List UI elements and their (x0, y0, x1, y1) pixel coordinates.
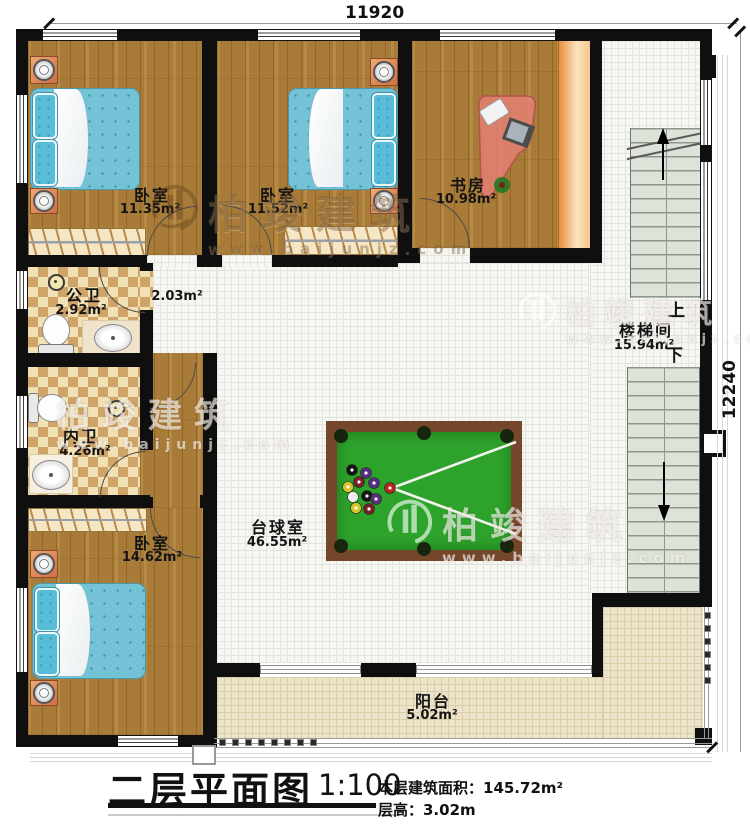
wall (412, 248, 420, 263)
dimension-right: 12240 (720, 360, 740, 419)
pillow (372, 93, 396, 139)
railing-baluster (310, 739, 317, 746)
billiard-balls (343, 465, 396, 515)
wall (592, 593, 603, 677)
window (700, 80, 712, 145)
stair-up-arrow (662, 142, 664, 180)
window (440, 29, 555, 41)
floor-area-info: 本层建筑面积：145.72m² (378, 777, 563, 798)
table-lamp-icon (33, 59, 55, 81)
room-area-bedroom-3: 14.62m² (122, 550, 182, 565)
floor-height-info: 层高：3.02m (378, 799, 476, 820)
pool-pockets (334, 426, 514, 556)
wall (361, 663, 416, 677)
room-area-balcony: 5.02m² (406, 708, 457, 723)
railing-baluster (704, 625, 711, 632)
nightstand (370, 58, 398, 86)
nightstand (30, 188, 58, 214)
room-area-ensuite-bathroom: 4.26m² (59, 444, 110, 459)
door-patch-tile-2 (222, 255, 272, 267)
railing-baluster (704, 677, 711, 684)
railing-baluster (258, 739, 265, 746)
railing-baluster (704, 612, 711, 619)
wall (212, 255, 222, 267)
stair-up-arrowhead (657, 128, 669, 144)
eave-line (30, 757, 712, 758)
nightstand (30, 680, 58, 706)
balcony-rail-line (214, 747, 712, 748)
table-lamp-icon (33, 553, 55, 575)
title-rule-thick (108, 803, 376, 808)
table-lamp-icon (33, 682, 55, 704)
sliding-door (260, 665, 361, 674)
door-patch-tile-1 (147, 255, 197, 267)
pillow (372, 140, 396, 186)
sliding-window (416, 665, 592, 674)
wall (202, 29, 217, 267)
cue-stick (392, 442, 516, 488)
stair-down-label: 下 (666, 341, 683, 366)
eave-line (717, 55, 718, 752)
bed-sheet-fold (308, 89, 343, 187)
nightstand (370, 188, 398, 214)
bed-sheet-fold (56, 584, 91, 676)
balcony-floor-right (603, 607, 703, 738)
room-area-billiards: 46.55m² (247, 535, 307, 550)
window (118, 735, 178, 747)
wall (398, 29, 412, 263)
window (16, 396, 28, 448)
room-area-bedroom-2: 11.52m² (248, 202, 308, 217)
sink (94, 324, 132, 352)
wall (470, 248, 602, 263)
room-area-hall: 2.03m² (151, 289, 202, 304)
railing-baluster (297, 739, 304, 746)
stair-down-arrowhead (658, 505, 670, 521)
pillow (35, 588, 59, 632)
wall (16, 353, 153, 367)
title-rule-thin (108, 814, 400, 816)
ceiling-lamp-icon (108, 400, 125, 417)
wall (272, 255, 398, 267)
window (700, 162, 712, 300)
room-area-public-bathroom: 2.92m² (55, 303, 106, 318)
floor-plan-screenshot: 11920 12240 卧室 11.35m² 卧室 11.52m² 书房 10.… (0, 0, 750, 831)
wall (700, 55, 716, 78)
railing-baluster (704, 664, 711, 671)
wall (203, 353, 217, 747)
toilet (37, 394, 67, 422)
window (16, 588, 28, 672)
railing-baluster (232, 739, 239, 746)
stair-flight-up (630, 128, 702, 298)
dimension-top: 11920 (345, 3, 404, 23)
study-cabinet (558, 41, 591, 248)
pillow (35, 632, 59, 676)
table-lamp-icon (373, 190, 395, 212)
railing-baluster (284, 739, 291, 746)
door-patch-tile-3 (420, 248, 470, 263)
window (16, 271, 28, 309)
pillow (33, 93, 57, 139)
railing-baluster (219, 739, 226, 746)
wall (16, 735, 210, 747)
pillow (33, 140, 57, 186)
wardrobe-bedroom-1 (28, 228, 146, 256)
table-lamp-icon (33, 190, 55, 212)
wall (16, 255, 147, 267)
ceiling-lamp-icon (48, 274, 65, 291)
wardrobe-bedroom-3 (28, 508, 147, 532)
stair-down-arrow (663, 462, 665, 506)
pool-table-detail (326, 421, 522, 561)
railing-baluster (704, 651, 711, 658)
sink (32, 460, 70, 490)
eave-line (30, 753, 712, 754)
toilet (42, 314, 70, 346)
nightstand (30, 550, 58, 578)
stair-up-label: 上 (668, 296, 685, 321)
study-desk (478, 95, 538, 201)
dimension-line-right (740, 30, 741, 752)
hall-floor (153, 263, 217, 353)
railing-baluster (704, 638, 711, 645)
wall (16, 29, 712, 41)
wall (217, 663, 260, 677)
railing-baluster (245, 739, 252, 746)
wall (590, 29, 602, 263)
railing-baluster (271, 739, 278, 746)
wardrobe-bedroom-2 (284, 226, 398, 255)
window (16, 95, 28, 183)
room-area-bedroom-1: 11.35m² (120, 202, 180, 217)
bed-sheet-fold (54, 89, 89, 187)
table-lamp-icon (373, 61, 395, 83)
dimension-line-top (48, 23, 737, 24)
window (43, 29, 117, 41)
cue-stick (392, 488, 516, 534)
wall (592, 593, 712, 607)
nightstand (30, 56, 58, 84)
room-area-study: 10.98m² (436, 192, 496, 207)
window (258, 29, 360, 41)
